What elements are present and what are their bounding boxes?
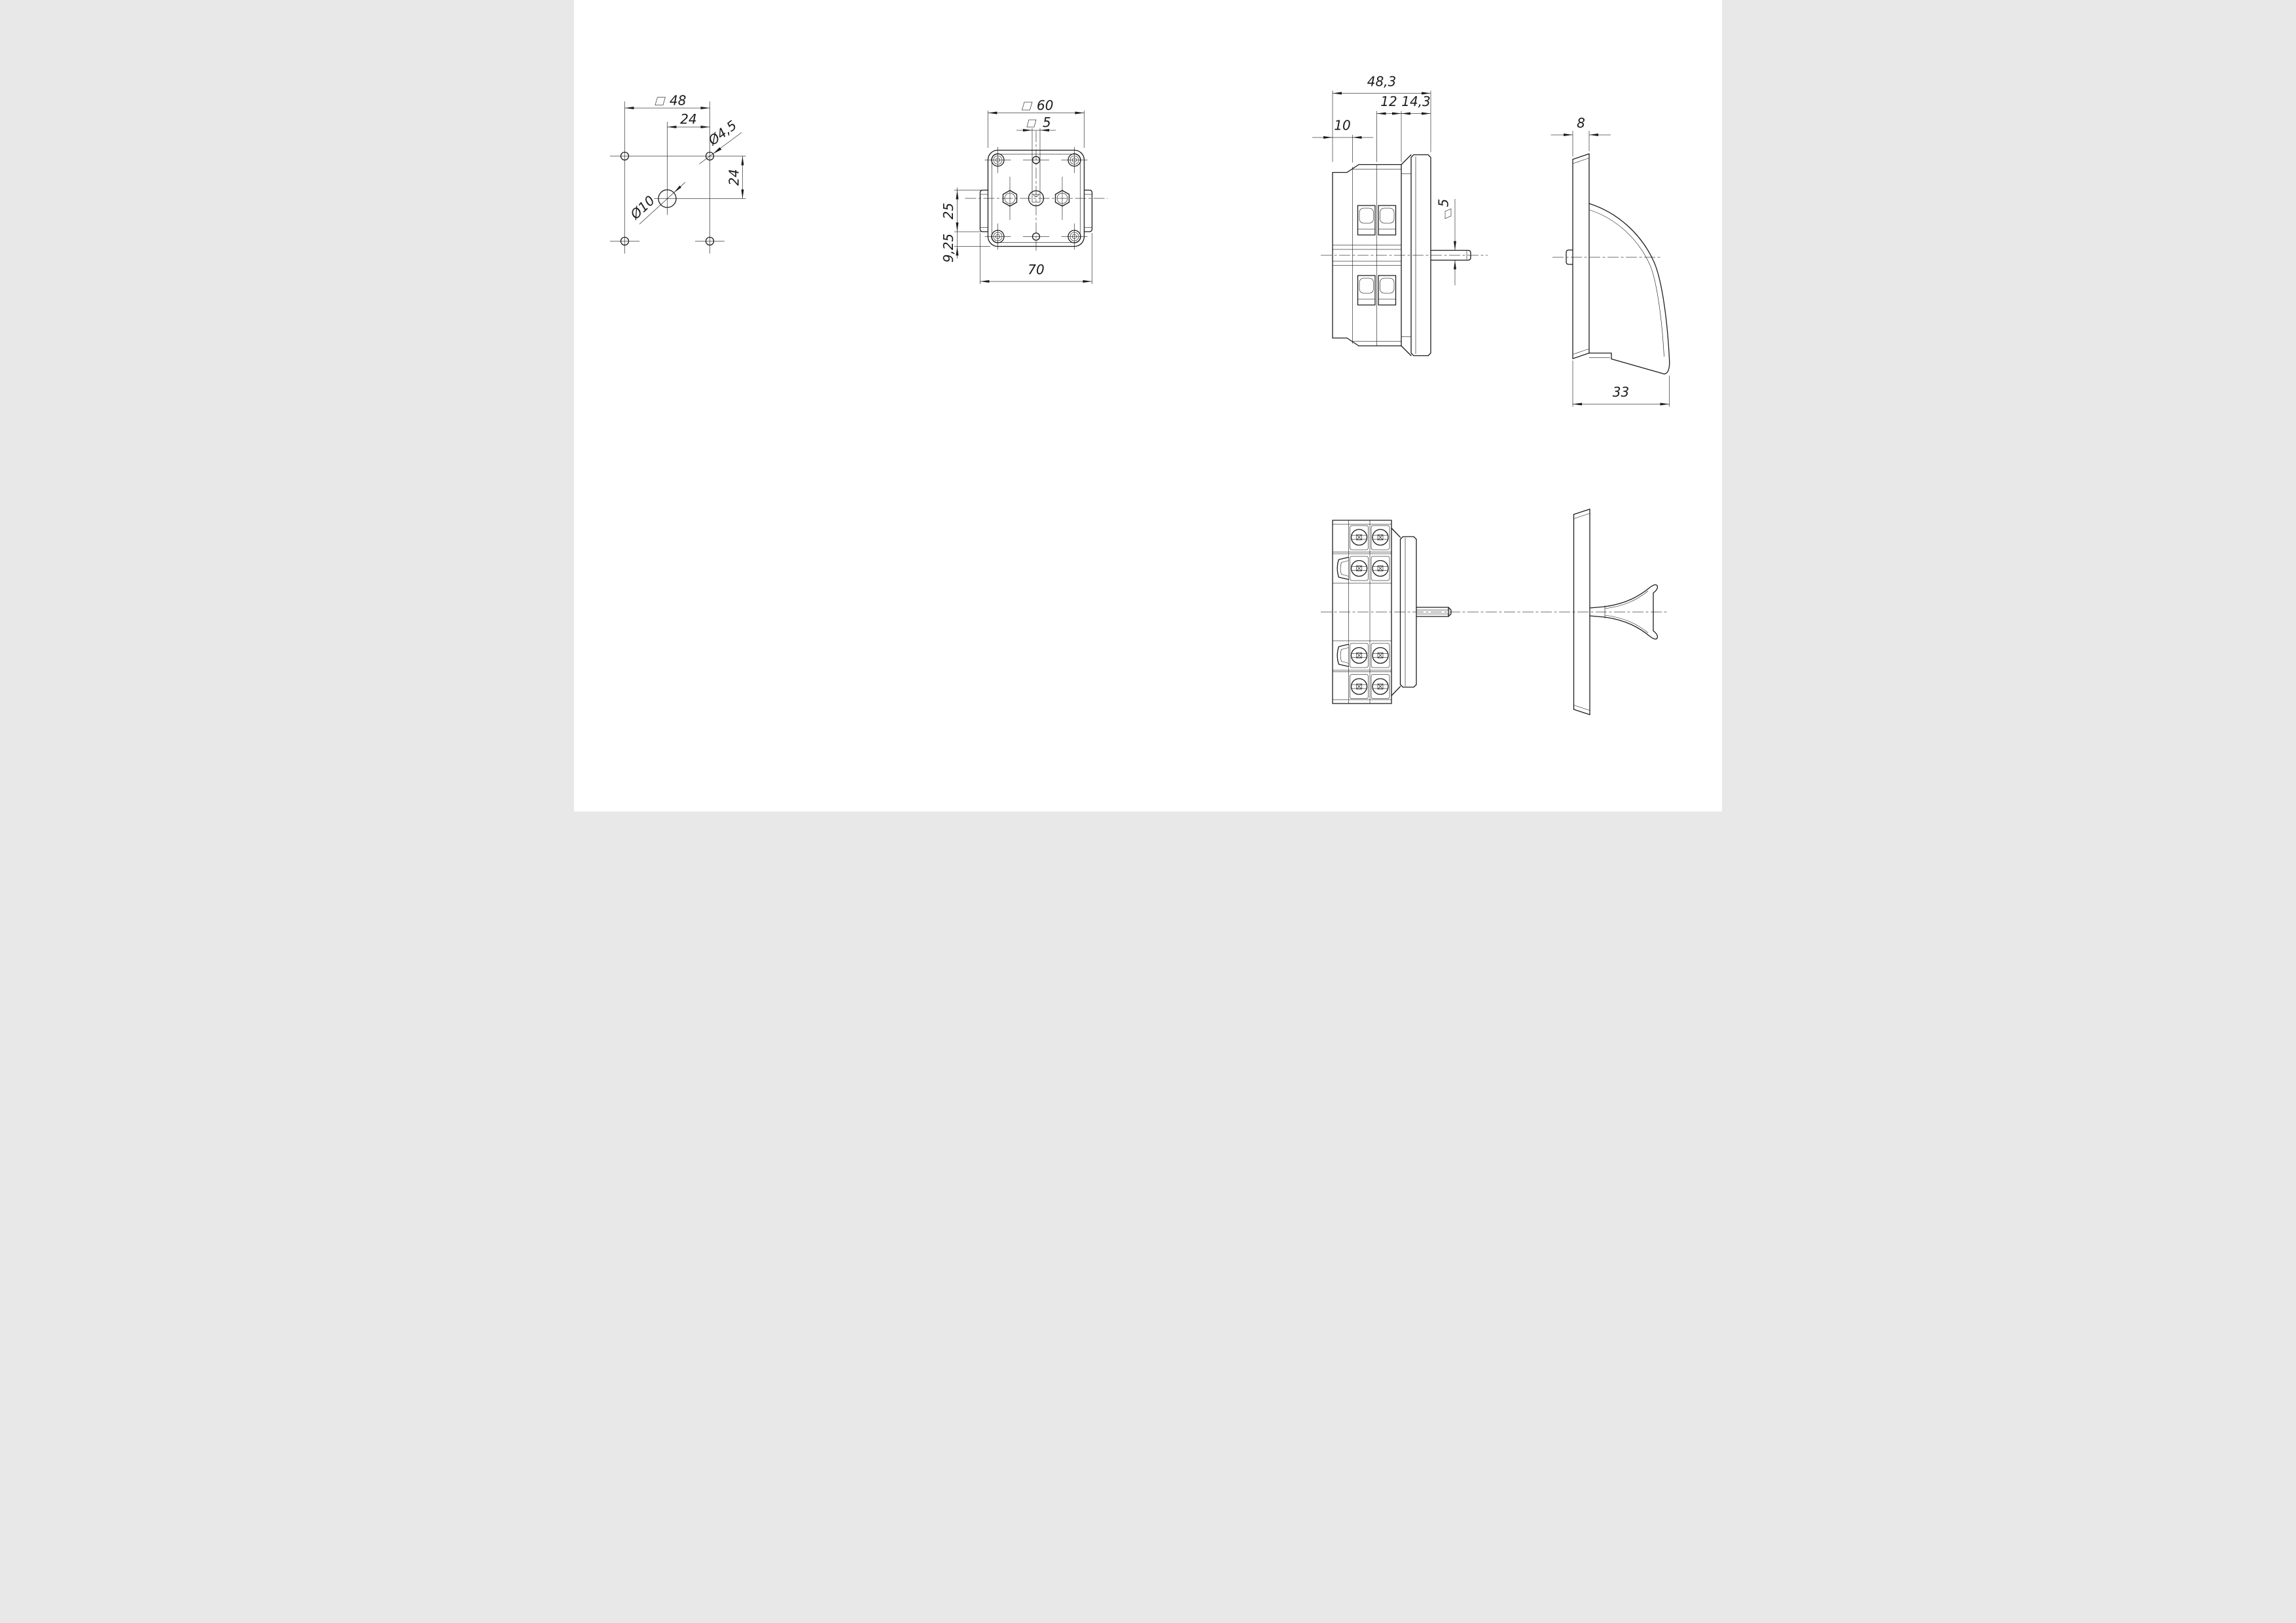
- terminal-screw: [1350, 526, 1369, 550]
- view-bottom-assembly: [1321, 509, 1667, 715]
- dim-label: 5: [1436, 199, 1452, 207]
- dim-label: 14,3: [1401, 94, 1431, 109]
- terminal-screw: [1350, 643, 1369, 668]
- drawing-sheet: 48 24 24 Ø4,5 Ø10: [574, 0, 1722, 811]
- square-symbol-icon: [1445, 209, 1451, 219]
- dim-label: 5: [1043, 115, 1051, 130]
- dim-square-5: 5: [1016, 115, 1056, 132]
- leader-dia-10: Ø10: [627, 183, 685, 224]
- dim-label: 8: [1577, 115, 1585, 131]
- dim-12: 12: [1377, 94, 1402, 162]
- dim-8: 8: [1551, 115, 1611, 156]
- wire-clamp: [1337, 645, 1348, 667]
- square-symbol-icon: [1027, 120, 1036, 127]
- dim-33: 33: [1573, 361, 1670, 407]
- corner-screw: [1062, 224, 1088, 250]
- corner-screw: [985, 147, 1011, 173]
- corner-screw: [985, 224, 1011, 250]
- terminal-screw: [1371, 556, 1390, 580]
- terminal-screw: [1350, 675, 1369, 699]
- handle-profile: [1589, 204, 1670, 374]
- cam-switch-technical-drawing: 48 24 24 Ø4,5 Ø10: [574, 0, 1722, 811]
- dim-label: 25: [941, 203, 956, 219]
- wire-clamp: [1337, 558, 1348, 580]
- dim-label: 60: [1037, 98, 1053, 113]
- dim-label: 24: [726, 169, 742, 185]
- dim-label: 70: [1028, 262, 1044, 277]
- dim-label: 33: [1613, 384, 1629, 400]
- view-front: 60 5 25 9,25 70: [941, 98, 1107, 284]
- terminal-screw: [1371, 675, 1390, 699]
- dim-label: 24: [680, 111, 696, 127]
- dim-label: 12: [1380, 94, 1397, 109]
- square-symbol-icon: [1022, 102, 1033, 110]
- mounting-tab-right: [1085, 190, 1092, 232]
- square-symbol-icon: [655, 98, 666, 105]
- mounting-tab-left: [980, 190, 988, 232]
- terminal-screw: [1371, 643, 1390, 668]
- dim-14-3: 14,3: [1401, 94, 1431, 115]
- view-side: 48,3 12 14,3 10: [1312, 74, 1488, 356]
- dim-label: 48,3: [1367, 74, 1397, 90]
- terminal-screw: [1350, 556, 1369, 580]
- terminal-screw: [1371, 526, 1390, 550]
- dim-square-48: 48: [625, 93, 710, 110]
- dim-10: 10: [1312, 118, 1373, 163]
- handle-flange-plate: [1573, 154, 1589, 359]
- dim-label: Ø10: [627, 192, 658, 223]
- dim-label: 10: [1334, 118, 1350, 134]
- dim-label: 48: [670, 93, 686, 109]
- dim-25-and-9-25: 25 9,25: [941, 188, 990, 263]
- dim-24-horizontal: 24: [668, 111, 710, 128]
- view-mounting-pattern: 48 24 24 Ø4,5 Ø10: [610, 93, 746, 254]
- dim-label: 9,25: [941, 234, 956, 263]
- view-handle-side: 8 33: [1551, 115, 1670, 407]
- corner-screw: [1062, 147, 1088, 173]
- dim-24-vertical: 24: [726, 156, 744, 199]
- dim-square-5-shaft: 5: [1436, 199, 1457, 285]
